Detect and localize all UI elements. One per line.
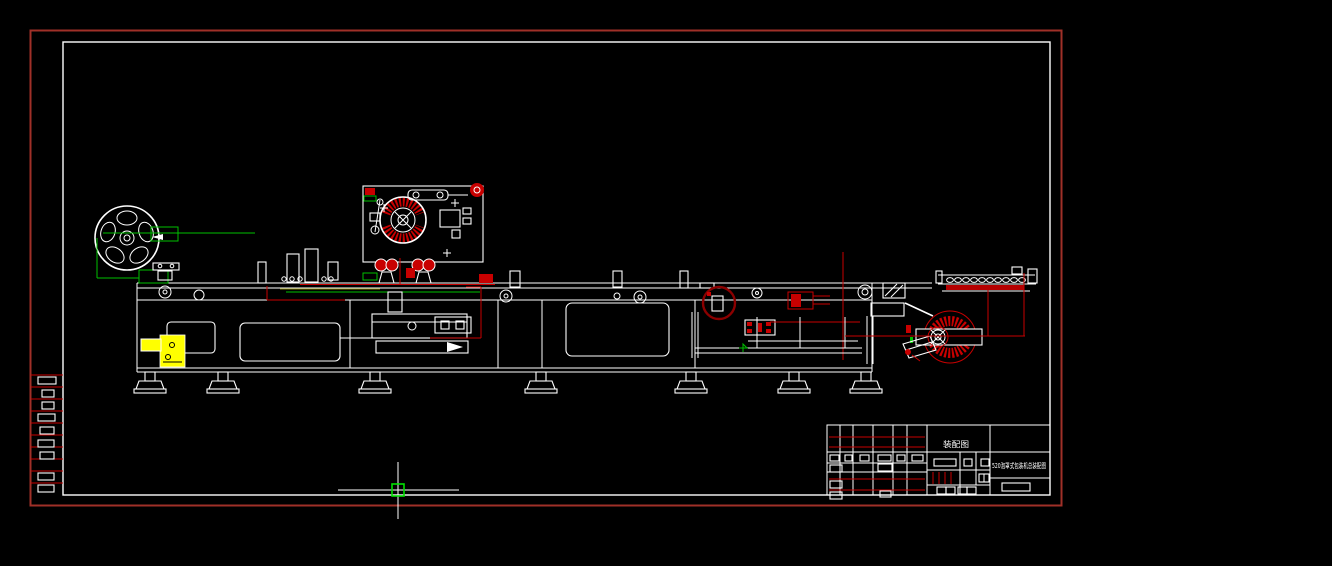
- drawing-title: 520泡罩式包装机总装配图: [992, 461, 1046, 470]
- doc-type-label: 装配图: [943, 439, 969, 449]
- red-idler-roller: [470, 183, 484, 197]
- assembly-drawing: 装配图 520泡罩式包装机总装配图: [0, 0, 1332, 566]
- cad-drawing-canvas[interactable]: 装配图 520泡罩式包装机总装配图: [0, 0, 1332, 566]
